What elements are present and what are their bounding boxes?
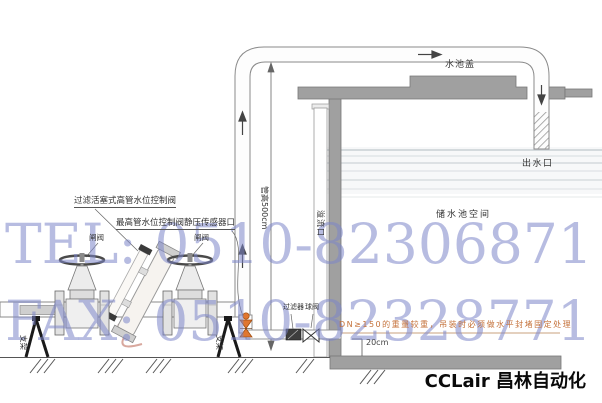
drop-pipe-hatched (535, 112, 549, 149)
diagram-page: TEL: 0510-82306871 FAX: 0510-82328771 过滤… (0, 0, 602, 403)
label-support-right: 支架 (215, 335, 223, 350)
label-gate-valve-left: 闸阀 (89, 234, 104, 242)
label-control-valve: 过滤活塞式高管水位控制阀 (74, 197, 176, 208)
brand-text: CCLair 昌林自动化 (425, 367, 586, 393)
label-overflow-port: 溢流口 (316, 210, 324, 237)
label-level-dim: 20cm (366, 339, 388, 347)
label-sensor-port: 最高管水位控制阀静压传感器口 (116, 219, 235, 230)
label-install-note: DN≥150的重量较重，吊装时必须做水平封堵固定处理 (339, 321, 572, 329)
label-filter: 过滤器 (283, 304, 304, 311)
label-support-left: 支架 (19, 335, 27, 350)
label-outlet: 出水口 (522, 160, 554, 169)
watermark-tel: TEL: 0510-82306871 (5, 217, 593, 272)
label-pipe-height: 管高500cm (260, 186, 268, 229)
label-ball-valve: 球阀 (305, 304, 319, 311)
tank-cover (298, 76, 527, 99)
label-gate-valve-right: 闸阀 (194, 234, 209, 242)
water-lines (316, 147, 602, 197)
label-tank-cover: 水池盖 (445, 61, 475, 70)
ground (0, 358, 385, 385)
label-tank-space: 储水池空间 (436, 211, 491, 220)
